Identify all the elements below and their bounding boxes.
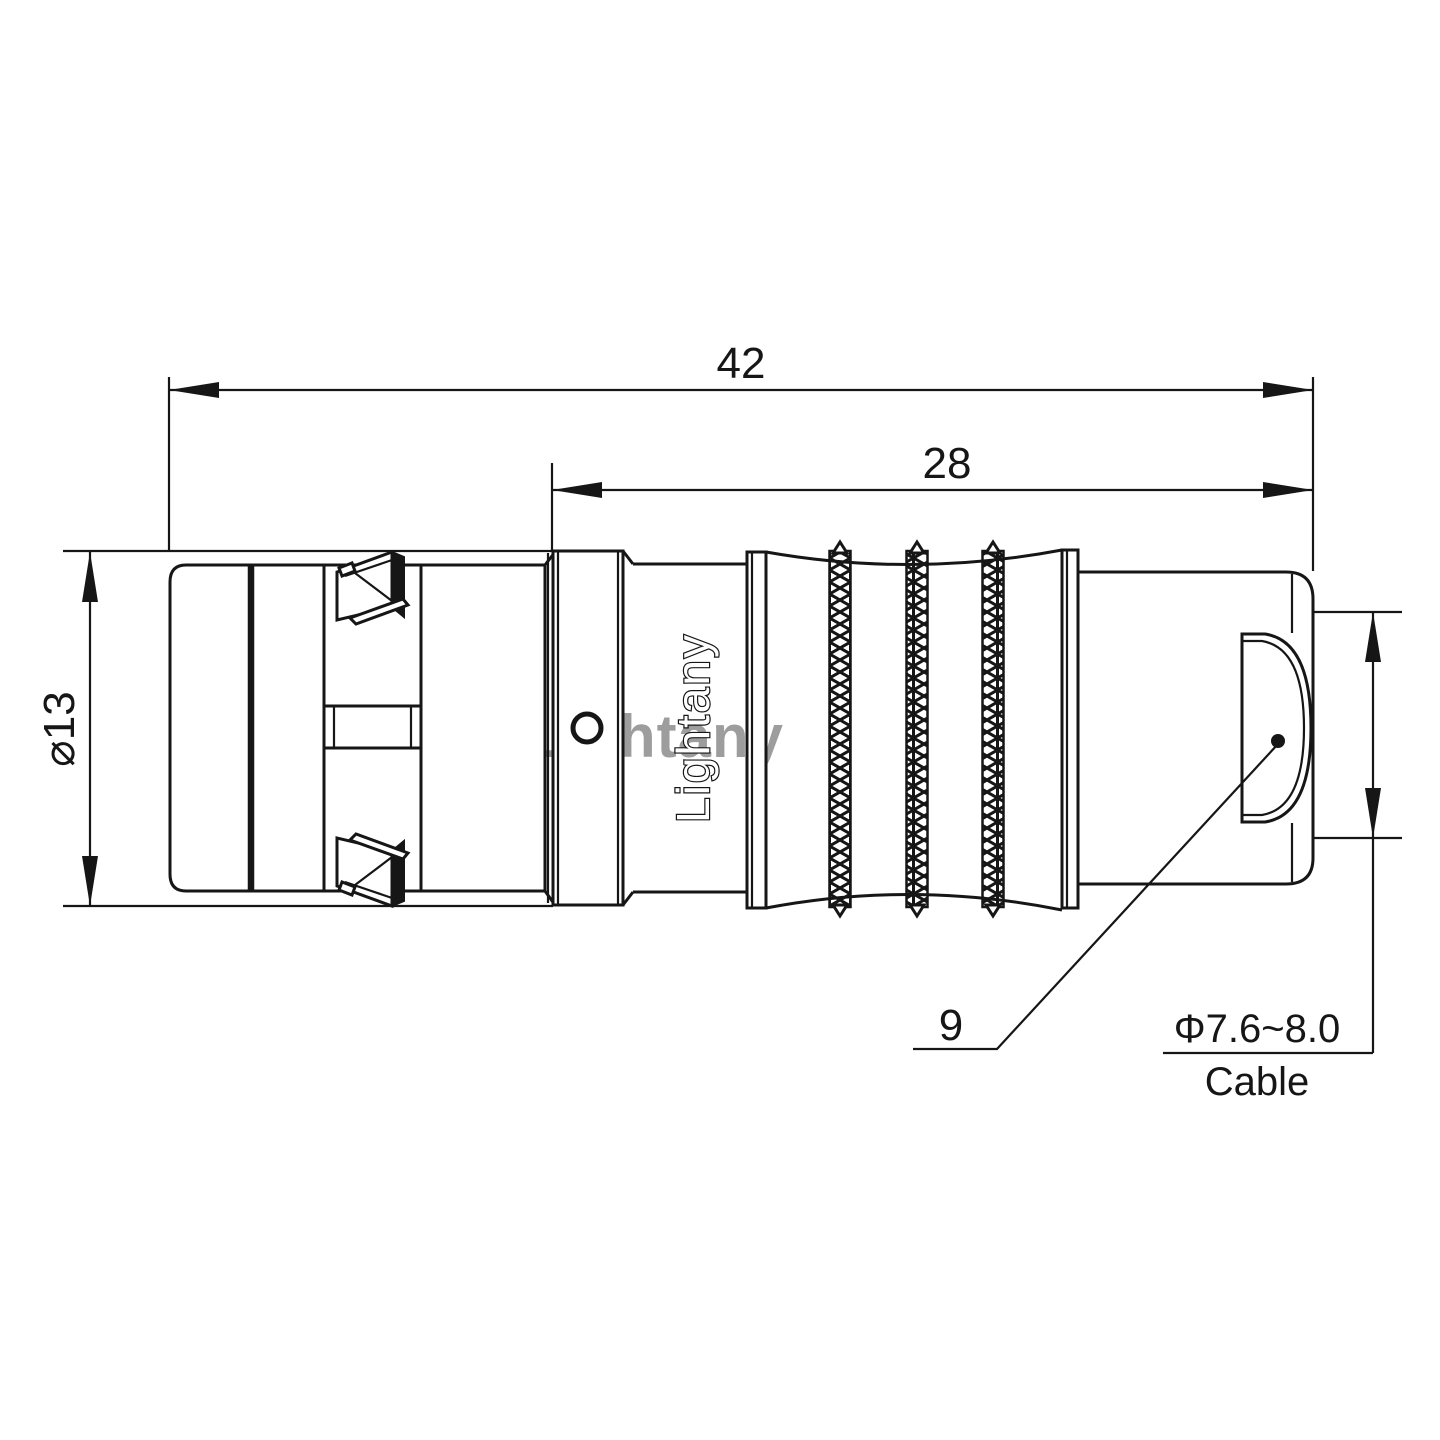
technical-drawing-sheet: Lightany <box>0 0 1440 1440</box>
knurl-ring-1 <box>830 542 851 916</box>
rear-cap <box>1078 572 1313 884</box>
connector-drawing-svg: Lightany <box>0 0 1440 1440</box>
brand-marking: Lightany <box>667 633 719 823</box>
knurl-ring-3 <box>983 542 1004 916</box>
dimension-overall-length: 42 <box>169 339 1313 571</box>
leader-dot <box>1271 734 1285 748</box>
rear-length-value: 28 <box>923 439 972 488</box>
shell-size-value: 9 <box>939 1001 963 1050</box>
knurl-ring-2 <box>907 542 928 916</box>
overall-length-value: 42 <box>717 339 766 388</box>
vent-hole <box>573 714 601 742</box>
latch-window <box>324 706 421 748</box>
grip-section <box>747 542 1078 916</box>
dimension-rear-length: 28 <box>552 439 1313 551</box>
cable-label: Cable <box>1205 1060 1310 1104</box>
cable-boot <box>1242 634 1311 822</box>
outer-diameter-value: ⌀13 <box>35 691 84 766</box>
collar <box>548 551 623 905</box>
cable-range-value: Φ7.6~8.0 <box>1174 1007 1340 1051</box>
